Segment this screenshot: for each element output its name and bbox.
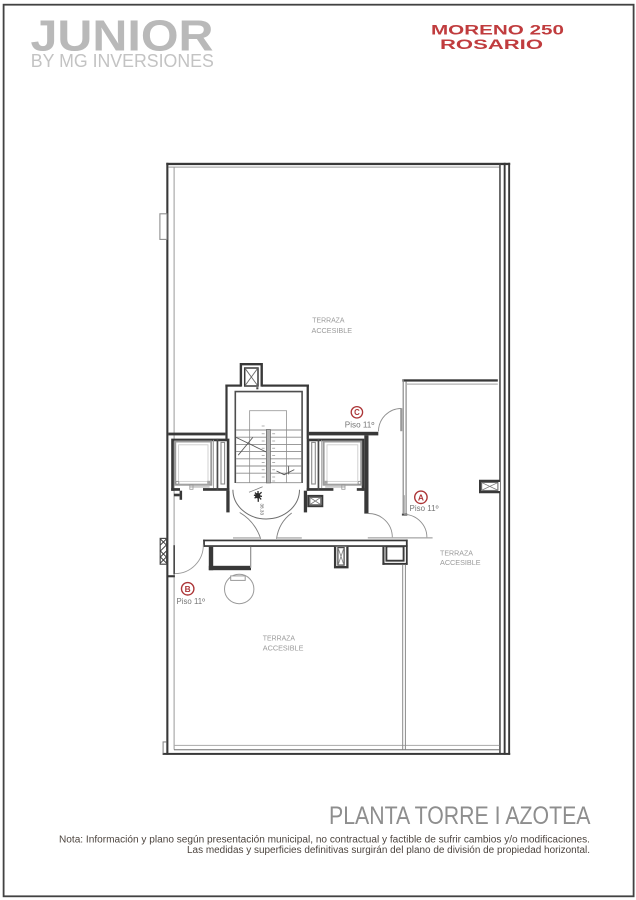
svg-text:B: B [185, 584, 191, 594]
svg-text:C: C [354, 408, 360, 417]
svg-text:ACCESIBLE: ACCESIBLE [263, 644, 304, 653]
svg-text:ACCESIBLE: ACCESIBLE [440, 558, 481, 567]
svg-text:Las medidas y superficies def: Las medidas y superficies definitivas su… [187, 845, 590, 856]
svg-text:A: A [418, 492, 424, 502]
svg-text:TERRAZA: TERRAZA [440, 548, 474, 557]
svg-text:PLANTA TORRE I AZOTEA: PLANTA TORRE I AZOTEA [329, 802, 591, 830]
svg-text:Piso 11º: Piso 11º [177, 597, 206, 606]
svg-text:TERRAZA: TERRAZA [263, 633, 296, 642]
svg-text:Piso 11º: Piso 11º [345, 420, 375, 429]
svg-text:ACCESIBLE: ACCESIBLE [312, 326, 353, 335]
svg-text:TERRAZA: TERRAZA [312, 316, 345, 325]
svg-text:MORENO 250: MORENO 250 [431, 23, 564, 38]
svg-text:Piso 11º: Piso 11º [410, 504, 439, 513]
svg-text:ROSARIO: ROSARIO [440, 37, 543, 52]
svg-text:Nota: Información y plano segú: Nota: Información y plano según presenta… [59, 835, 590, 846]
svg-text:BY MG INVERSIONES: BY MG INVERSIONES [31, 51, 214, 71]
svg-text:38.33: 38.33 [260, 504, 265, 516]
